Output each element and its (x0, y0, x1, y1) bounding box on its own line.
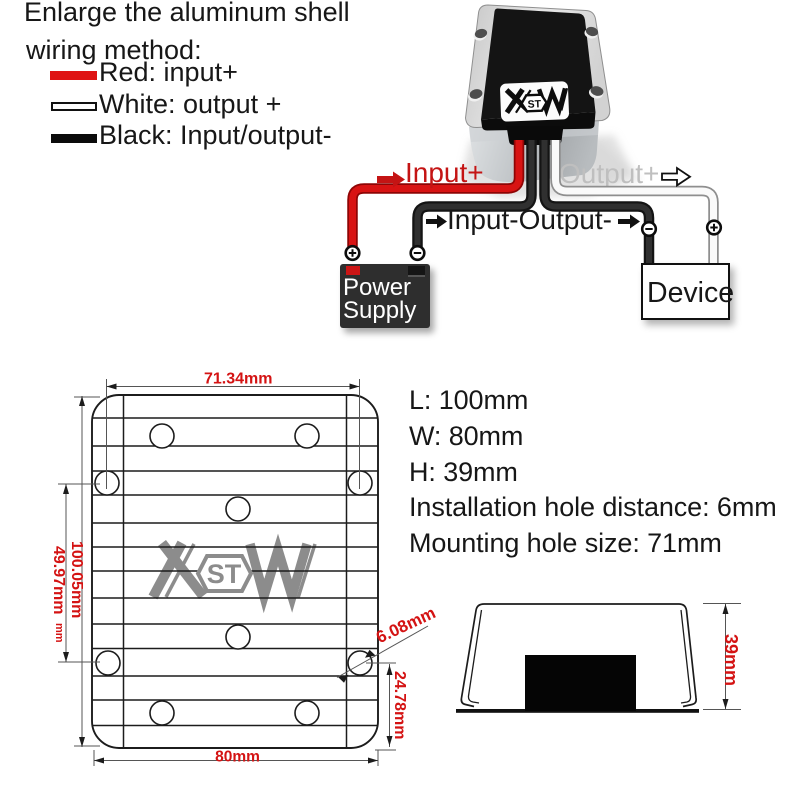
svg-text:71.34mm: 71.34mm (204, 371, 273, 388)
svg-text:mm: mm (53, 623, 65, 643)
svg-text:39mm: 39mm (721, 634, 741, 686)
svg-text:80mm: 80mm (215, 749, 260, 766)
svg-text:24.78mm: 24.78mm (391, 671, 408, 740)
svg-text:6.08mm: 6.08mm (373, 603, 438, 647)
svg-text:49.97mm: 49.97mm (50, 546, 67, 615)
svg-text:100.05mm: 100.05mm (68, 541, 85, 618)
svg-text:ST: ST (527, 98, 541, 111)
svg-text:ST: ST (207, 559, 242, 589)
